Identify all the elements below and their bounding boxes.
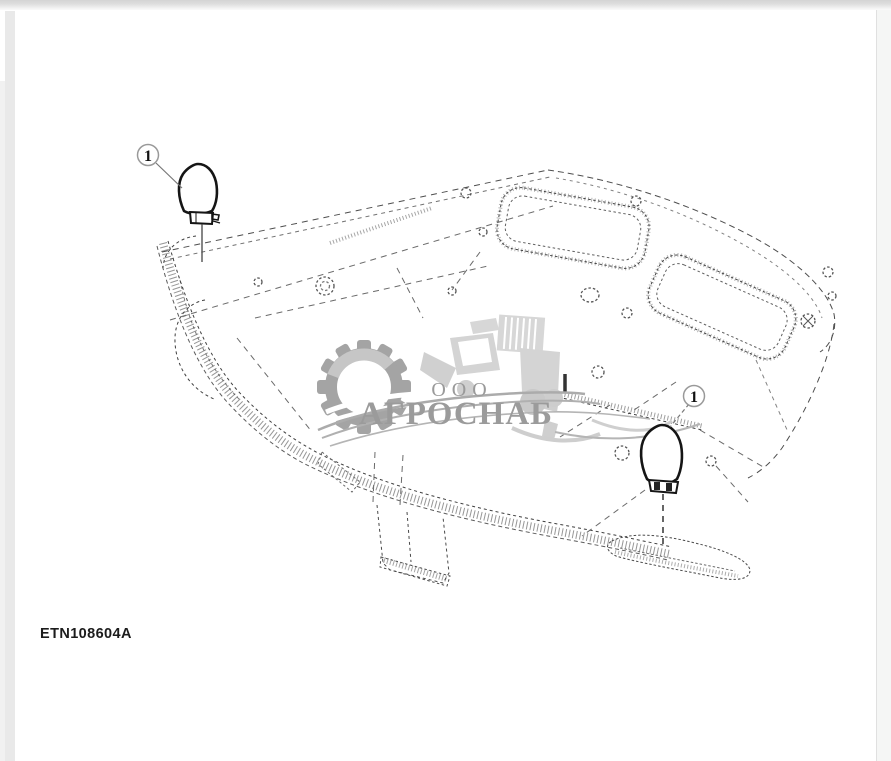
roof-cutout-2 [642, 249, 802, 366]
leader-line-2 [670, 404, 689, 427]
watermark-company-name: АГРОСНАБ [359, 396, 553, 432]
leader-line-1 [156, 163, 182, 188]
callout-2: 1 [670, 386, 705, 428]
bracket-lower-left [377, 505, 450, 586]
callout-2-label: 1 [690, 389, 698, 406]
callout-1: 1 [138, 145, 183, 189]
parts-diagram-page: ООО АГРОСНАБ 1 [0, 0, 891, 761]
beacon-light-2 [641, 425, 682, 546]
rail-lower-right [607, 535, 750, 579]
watermark: ООО АГРОСНАБ [317, 315, 700, 446]
roof-panel-drawing: ООО АГРОСНАБ 1 [0, 0, 891, 761]
roof-cutout-1 [494, 184, 652, 271]
part-code: ETN108604A [40, 626, 132, 642]
callout-1-label: 1 [144, 148, 152, 165]
